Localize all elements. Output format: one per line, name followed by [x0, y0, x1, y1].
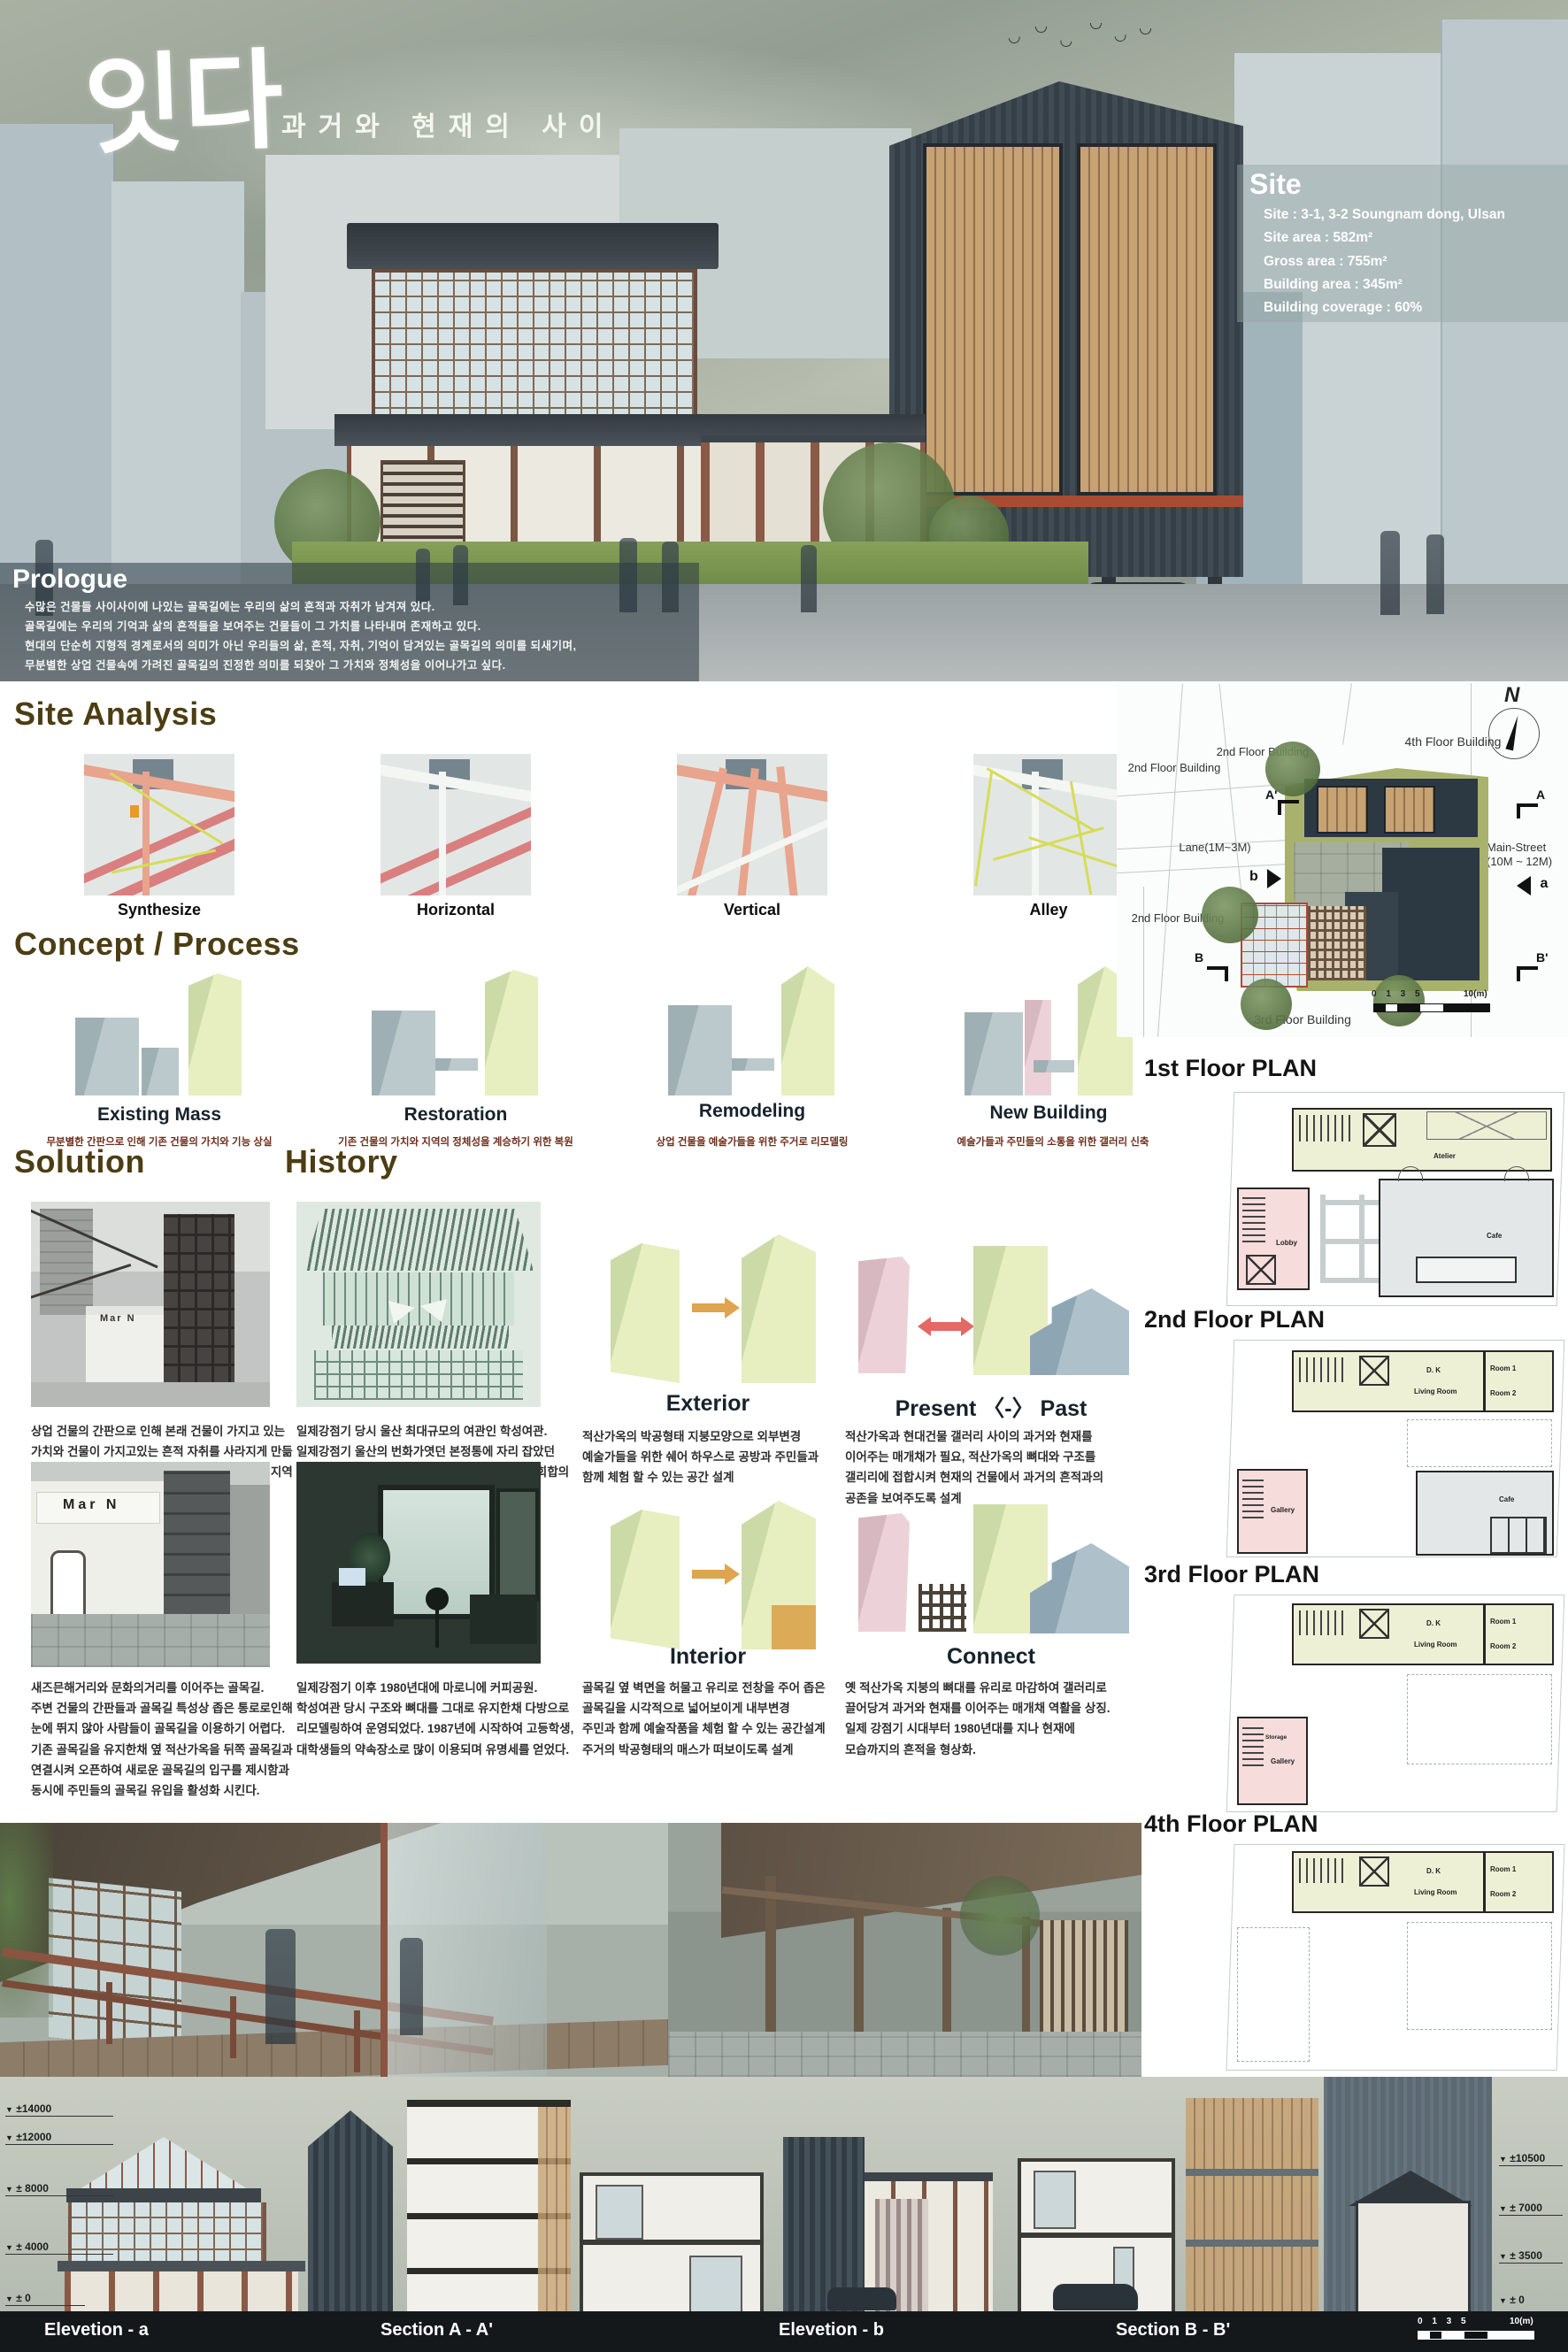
- room-label: Gallery: [1271, 1506, 1295, 1514]
- cafe-room: Cafe: [1379, 1179, 1554, 1297]
- photo-building-dark: [164, 1214, 234, 1382]
- concept-label: Existing Mass: [35, 1104, 283, 1126]
- level-marker-icon: ▼: [1499, 2204, 1507, 2213]
- level-text: ± 3500: [1510, 2249, 1542, 2262]
- plan4-drawing: D. K Living Room Room 1 Room 2: [1221, 1842, 1568, 2072]
- concept-heading: Concept / Process: [14, 926, 300, 963]
- photo-fan: [426, 1587, 449, 1610]
- parcel-line: [1157, 683, 1183, 1036]
- house-body: [68, 2202, 266, 2264]
- level-marker-icon: ▼: [5, 2105, 13, 2114]
- car-silhouette: [827, 2287, 896, 2310]
- map-road: [439, 772, 446, 895]
- room-label: Room 1: [1490, 1618, 1516, 1626]
- stair-hatch: [1299, 1858, 1349, 1883]
- view-arrow-icon: [1267, 869, 1281, 888]
- level-text: ± 4000: [16, 2241, 49, 2253]
- plan2-heading: 2nd Floor PLAN: [1144, 1306, 1325, 1334]
- room-label: Room 1: [1490, 1364, 1516, 1372]
- poster-subtitle: 과거와 현재의 사이: [281, 104, 615, 143]
- tree: [1241, 979, 1292, 1030]
- room-label: D. K: [1426, 1867, 1441, 1875]
- caption-section-a: Section A - A': [380, 2320, 493, 2340]
- photo-desk: [332, 1582, 394, 1626]
- tree: [1202, 887, 1258, 943]
- mass-block: [142, 1048, 179, 1095]
- mass-block: [965, 1012, 1023, 1095]
- concept-label: Restoration: [332, 1104, 580, 1126]
- residence-unit: D. K Living Room Room 1 Room 2: [1292, 1350, 1554, 1412]
- north-label: N: [1504, 683, 1519, 708]
- elevator-x: [1359, 1856, 1389, 1887]
- plan1-heading: 1st Floor PLAN: [1144, 1055, 1317, 1082]
- mass-block: [372, 1011, 435, 1095]
- concept-caption: 상업 건물을 예술가들을 위한 주거로 리모델링: [611, 1134, 894, 1149]
- level-text: ± 7000: [1510, 2202, 1542, 2214]
- level-10500: ▼ ±10500: [1499, 2152, 1563, 2166]
- photo-building-side: [230, 1485, 270, 1614]
- floor-slab: [583, 2240, 760, 2245]
- pink-slab: [1025, 1000, 1051, 1095]
- concept-diagram-restoration: [354, 966, 557, 1099]
- site-courtyard: [1317, 786, 1368, 834]
- caption-elevation-a: Elevetion - a: [44, 2320, 149, 2340]
- render-person: [265, 1929, 296, 2044]
- concept-label: Remodeling: [628, 1101, 876, 1122]
- stair-hatch: [1299, 1115, 1352, 1141]
- site-plan-panel: N 4th Floor Building 2nd Floor Building …: [1117, 683, 1568, 1037]
- bar-scale-end: 10(m): [1510, 2317, 1533, 2326]
- photo-fan-stand: [435, 1609, 439, 1648]
- level-marker-icon: ▼: [5, 2243, 13, 2252]
- connect-caption: 옛 적산가옥 지붕의 뼈대를 유리로 마감하여 갤러리로 끌어당겨 과거와 현재…: [845, 1678, 1146, 1760]
- prologue-line: 골목길에는 우리의 기억과 삶의 흔적들을 보여주는 건물들이 그 가치를 나타…: [25, 618, 697, 637]
- analysis-map-horizontal: [380, 754, 531, 895]
- marker-text: B': [1536, 950, 1548, 965]
- photo-window-side: [496, 1488, 539, 1602]
- poster-title: 잇다: [81, 12, 286, 176]
- gallery-room: Storage Gallery: [1237, 1717, 1308, 1805]
- void-outline: [1407, 1674, 1552, 1764]
- view-arrow-icon: [1517, 876, 1531, 895]
- level-8000: ▼ ± 8000: [5, 2182, 113, 2196]
- solution-caption-2: 새즈믄해거리와 문화의거리를 이어주는 골목길. 주변 건물의 간판들과 골목길…: [31, 1678, 305, 1801]
- level-0-left: ▼ ± 0: [5, 2292, 85, 2306]
- room-label: Storage: [1265, 1734, 1287, 1741]
- room-divider: [1483, 1352, 1486, 1410]
- exterior-caption: 적산가옥의 박공형태 지붕모양으로 외부변경 예술가들을 위한 쉐어 하우스로 …: [582, 1426, 857, 1488]
- arrow-label: b: [1249, 869, 1258, 884]
- arrow-label: a: [1540, 876, 1548, 891]
- room-label: Living Room: [1414, 1888, 1457, 1896]
- floor-slab: [1021, 2233, 1172, 2238]
- green-slab: [188, 973, 242, 1095]
- site-info-line: Site : 3-1, 3-2 Soungnam dong, Ulsan: [1264, 204, 1564, 227]
- window-pane: [596, 2185, 643, 2240]
- render-railing-post: [354, 2010, 360, 2072]
- section-a-tower: [308, 2110, 393, 2311]
- void-outline: [1407, 1419, 1552, 1467]
- mass-block: [668, 1005, 732, 1095]
- site-courtyard: [1384, 786, 1435, 834]
- label-2f-building-left: 2nd Floor Building: [1126, 761, 1223, 775]
- porch-roof: [58, 2261, 305, 2271]
- atelier-room: Atelier: [1292, 1108, 1552, 1172]
- room-label: Room 1: [1490, 1865, 1516, 1873]
- level-0-right: ▼ ± 0: [1499, 2294, 1545, 2307]
- photo-pavement: [31, 1614, 270, 1667]
- level-text: ± 0: [16, 2292, 31, 2304]
- concept-caption: 예술가들과 주민들의 소통을 위한 갤러리 신축: [911, 1134, 1195, 1149]
- section-bracket-icon: [1278, 800, 1299, 815]
- level-marker-icon: ▼: [5, 2294, 13, 2303]
- history-photo-interior: [296, 1462, 541, 1664]
- level-12000: ▼ ±12000: [5, 2131, 113, 2145]
- level-text: ±12000: [16, 2131, 51, 2143]
- concept-label: New Building: [925, 1103, 1172, 1124]
- hanok-roof-upper: [347, 223, 719, 269]
- interior-label: Interior: [602, 1644, 814, 1670]
- map-alley: [974, 772, 993, 886]
- elevation-a-drawing: [58, 2137, 305, 2311]
- site-info-line: Building area : 345m²: [1264, 273, 1564, 296]
- pink-slab: [858, 1257, 910, 1373]
- level-text: ±10500: [1510, 2152, 1545, 2164]
- render-timber-post: [854, 1894, 864, 2046]
- green-slab: [611, 1243, 680, 1383]
- section-marker-b: B: [1195, 950, 1228, 981]
- render-railing-post: [106, 1982, 112, 2044]
- history-photo-inn: [296, 1202, 541, 1407]
- elevator-x: [1363, 1113, 1396, 1147]
- site-info-line: Site area : 582m²: [1264, 227, 1564, 250]
- level-marker-icon: ▼: [1499, 2252, 1507, 2261]
- photo-door: [50, 1550, 86, 1619]
- residence-unit: D. K Living Room Room 1 Room 2: [1292, 1851, 1554, 1913]
- map-site-dot: [130, 805, 139, 818]
- exterior-label: Exterior: [602, 1391, 814, 1417]
- photo-window-grid: [314, 1350, 523, 1400]
- hanok-upper-floor: [372, 269, 697, 427]
- concept-diagram-existing-mass: [58, 966, 261, 1099]
- scale-end: 10(m): [1464, 989, 1487, 999]
- marker-text: A: [1536, 788, 1545, 802]
- level-text: ± 0: [1510, 2294, 1525, 2306]
- section-marker-a: A: [1517, 788, 1545, 819]
- present-past-diagram: [849, 1246, 1133, 1379]
- void-outline: [1237, 1927, 1310, 2062]
- analysis-map-alley: [973, 754, 1124, 895]
- counter: [1416, 1257, 1517, 1283]
- plan4-heading: 4th Floor PLAN: [1144, 1810, 1318, 1838]
- room-label: D. K: [1426, 1619, 1441, 1627]
- stair-hatch: [1242, 1196, 1265, 1242]
- plan1-drawing: Atelier Lobby Cafe: [1221, 1088, 1568, 1308]
- view-arrow-b: b: [1249, 869, 1281, 893]
- photo-sign-text: Mar N: [100, 1313, 136, 1324]
- prologue-overlay: Prologue 수많은 건물들 사이사이에 나있는 골목길에는 우리의 삶의 …: [0, 563, 699, 681]
- level-7000: ▼ ± 7000: [1499, 2202, 1563, 2216]
- stair-hatch: [1242, 1476, 1264, 1518]
- section-house: [580, 2172, 764, 2311]
- map-label: Alley: [973, 901, 1124, 919]
- site-info-lines: Site : 3-1, 3-2 Soungnam dong, Ulsan Sit…: [1264, 204, 1564, 320]
- section-marker-a-prime: A': [1265, 788, 1299, 815]
- level-14000: ▼ ±14000: [5, 2102, 113, 2117]
- room-label: Living Room: [1414, 1641, 1457, 1649]
- photo-building-dark: [164, 1471, 230, 1614]
- section-a-building: [407, 2100, 571, 2311]
- prologue-heading: Prologue: [12, 565, 127, 595]
- prologue-text: 수많은 건물들 사이사이에 나있는 골목길에는 우리의 삶의 흔적과 자취가 남…: [25, 598, 697, 676]
- photo-balcony: [323, 1272, 514, 1326]
- stair-hatch: [1299, 1357, 1349, 1382]
- braced-deck: [1426, 1111, 1547, 1140]
- arrow-right-icon: [692, 1303, 726, 1312]
- level-text: ± 8000: [16, 2182, 49, 2194]
- floor-band: [1186, 2169, 1318, 2176]
- room-label: Room 2: [1490, 1890, 1516, 1898]
- site-info-line: Gross area : 755m²: [1264, 250, 1564, 273]
- section-bracket-icon: [1517, 803, 1538, 819]
- prologue-line: 무분별한 상업 건물속에 가려진 골목길의 진정한 의미를 되찾아 그 가치와 …: [25, 657, 697, 676]
- elevation-b-tower: [783, 2137, 865, 2311]
- room-label: Atelier: [1433, 1152, 1456, 1160]
- map-label: Horizontal: [380, 901, 531, 919]
- render-paving: [668, 2032, 1141, 2077]
- site-lattice-house: [1308, 906, 1366, 980]
- photo-chairs: [470, 1595, 537, 1644]
- section-bracket-icon: [1517, 966, 1538, 981]
- render-railing-post: [230, 1996, 236, 2058]
- birds-icon: [1009, 19, 1159, 64]
- stair-hatch: [1242, 1724, 1264, 1766]
- cafe-room: Cafe: [1416, 1471, 1554, 1556]
- render-lattice-screen: [1040, 1920, 1128, 2044]
- slat-facade-building: [1186, 2098, 1318, 2311]
- label-main-street: Main-Street: [1487, 841, 1568, 855]
- void-outline: [1407, 1922, 1552, 2030]
- inset-house-body: [1356, 2201, 1471, 2311]
- history-heading: History: [285, 1143, 398, 1180]
- site-info-line: Building coverage : 60%: [1264, 296, 1564, 319]
- view-arrow-a: a: [1517, 876, 1548, 900]
- render-timber-post: [942, 1908, 951, 2048]
- room-divider: [1483, 1853, 1486, 1911]
- tower-wood-panel: [1077, 143, 1217, 496]
- elevator-x: [1359, 1356, 1389, 1386]
- tower-wood-panel: [923, 143, 1063, 496]
- plan3-heading: 3rd Floor PLAN: [1144, 1561, 1319, 1588]
- mass-connector: [435, 1058, 478, 1071]
- analysis-map-vertical: [677, 754, 827, 895]
- present-past-label: Present 〈-〉 Past: [849, 1391, 1133, 1423]
- marker-text: B: [1195, 950, 1203, 965]
- history-caption-2: 일제강점기 이후 1980년대에 마로니에 커피공원. 학성여관 당시 구조와 …: [296, 1678, 580, 1760]
- bar-scale-bar: [1418, 2331, 1534, 2340]
- bar-scale-ticks: 0 1 3 5: [1418, 2317, 1470, 2326]
- level-marker-icon: ▼: [1499, 2155, 1507, 2164]
- prologue-line: 현대의 단순히 지형적 경계로서의 의미가 아닌 우리들의 삶, 흔적, 자취,…: [25, 637, 697, 657]
- site-info-box: Site Site : 3-1, 3-2 Soungnam dong, Ulsa…: [1237, 165, 1568, 322]
- level-text: ±14000: [16, 2102, 51, 2115]
- label-4f-building: 4th Floor Building: [1373, 734, 1533, 750]
- room-label: Cafe: [1487, 1232, 1502, 1240]
- site-info-heading: Site: [1249, 168, 1302, 201]
- marker-text: A': [1265, 788, 1277, 802]
- site-analysis-heading: Site Analysis: [14, 696, 217, 733]
- scale-ticks: 0 1 3 5: [1372, 989, 1424, 999]
- map-road: [1032, 772, 1039, 895]
- connect-diagram: [849, 1504, 1133, 1637]
- connect-label: Connect: [849, 1644, 1133, 1670]
- photo-pavement: [31, 1382, 270, 1407]
- photo-roof-hatch: [332, 1326, 509, 1349]
- green-slab: [485, 970, 538, 1095]
- timber-frame-icon: [919, 1584, 966, 1632]
- render-alley: [668, 1823, 1141, 2077]
- render-timber-post: [765, 1876, 776, 2044]
- room-label: Gallery: [1271, 1757, 1295, 1765]
- slat-column: [538, 2107, 571, 2311]
- elevator-x: [1246, 1255, 1276, 1285]
- elevation-strip: [0, 2077, 1568, 2311]
- plan3-drawing: D. K Living Room Room 1 Room 2 Storage G…: [1221, 1593, 1568, 1814]
- present-past-caption: 적산가옥과 현대건물 갤러리 사이의 과거와 현재를 이어주는 매개채가 필요,…: [845, 1426, 1137, 1509]
- hero-render: 잇다 과거와 현재의 사이 Site Site : 3-1, 3-2 Soung…: [0, 0, 1568, 681]
- right-dark-elevation: [1324, 2077, 1492, 2311]
- double-arrow-icon: [931, 1322, 961, 1331]
- label-main-street-width: (10M ~ 12M): [1487, 855, 1568, 869]
- render-person: [400, 1938, 423, 2035]
- floor-band: [1186, 2240, 1318, 2247]
- level-marker-icon: ▼: [5, 2185, 13, 2194]
- prologue-line: 수많은 건물들 사이사이에 나있는 골목길에는 우리의 삶의 흔적과 자취가 남…: [25, 598, 697, 618]
- window-pane: [1034, 2171, 1076, 2229]
- map-label: Vertical: [677, 901, 827, 919]
- arrow-right-icon: [692, 1570, 726, 1579]
- photo-roof-hatch: [304, 1209, 534, 1271]
- green-slab: [611, 1510, 680, 1649]
- stair-hatch: [1299, 1610, 1349, 1635]
- concept-diagram-remodeling: [650, 966, 854, 1099]
- room-label: Room 2: [1490, 1389, 1516, 1397]
- section-bracket-icon: [1207, 966, 1228, 981]
- residence-unit: D. K Living Room Room 1 Room 2: [1292, 1603, 1554, 1665]
- car-silhouette: [1053, 2284, 1138, 2310]
- room-divider: [1483, 1605, 1486, 1664]
- analysis-map-synthesize: [84, 754, 234, 895]
- level-marker-icon: ▼: [1499, 2296, 1507, 2305]
- green-slab: [781, 966, 834, 1095]
- mass-block: [75, 1018, 139, 1095]
- caption-section-b: Section B - B': [1116, 2320, 1230, 2340]
- window-pane: [689, 2256, 742, 2311]
- solution-heading: Solution: [14, 1143, 145, 1180]
- solution-photo-storefront: Mar N: [31, 1462, 270, 1667]
- level-3500: ▼ ± 3500: [1499, 2249, 1563, 2264]
- mass-connector: [732, 1058, 774, 1071]
- elevator-x: [1359, 1609, 1389, 1639]
- room-label: Lobby: [1276, 1239, 1297, 1247]
- photo-sign-text: Mar N: [63, 1497, 119, 1513]
- orange-base: [772, 1605, 816, 1649]
- interior-caption: 골목길 옆 벽면을 허물고 유리로 전창을 주어 좁은 골목길을 시각적으로 넓…: [582, 1678, 865, 1760]
- section-marker-b-prime: B': [1517, 950, 1548, 981]
- room-label: Cafe: [1499, 1495, 1514, 1503]
- room-label: Room 2: [1490, 1642, 1516, 1650]
- lobby-room: Lobby: [1237, 1188, 1310, 1290]
- caption-bar: Elevetion - a Section A - A' Elevetion -…: [0, 2311, 1568, 2352]
- gallery-room: Gallery: [1237, 1469, 1308, 1554]
- map-label: Synthesize: [84, 901, 234, 919]
- room-label: Living Room: [1414, 1387, 1457, 1395]
- site-plan-scale-bar: [1373, 1003, 1490, 1012]
- map-alley: [1028, 836, 1122, 869]
- parcel-line: [1218, 684, 1241, 895]
- interior-diagram: [584, 1501, 832, 1651]
- map-road: [142, 772, 150, 895]
- plan2-drawing: D. K Living Room Room 1 Room 2 Gallery C…: [1221, 1338, 1568, 1559]
- caption-elevation-b: Elevetion - b: [779, 2320, 884, 2340]
- parcel-line: [1342, 683, 1352, 744]
- house-base: [65, 2271, 298, 2311]
- solution-photo-street: Mar N: [31, 1202, 270, 1407]
- tree: [1373, 975, 1425, 1026]
- render-walkway: [0, 1823, 668, 2077]
- mass-connector: [1034, 1060, 1074, 1072]
- render-foliage: [960, 1876, 1040, 1956]
- label-lane: Lane(1M~3M): [1157, 841, 1272, 855]
- green-slab-gable: [742, 1234, 816, 1383]
- parcel-line: [1143, 887, 1144, 1037]
- pink-slab: [858, 1513, 910, 1632]
- room-label: D. K: [1426, 1366, 1441, 1374]
- level-marker-icon: ▼: [5, 2133, 13, 2142]
- photo-screen: [339, 1568, 365, 1586]
- exterior-diagram: [584, 1234, 832, 1385]
- level-4000: ▼ ± 4000: [5, 2241, 113, 2255]
- wc-cells: [1490, 1517, 1547, 1554]
